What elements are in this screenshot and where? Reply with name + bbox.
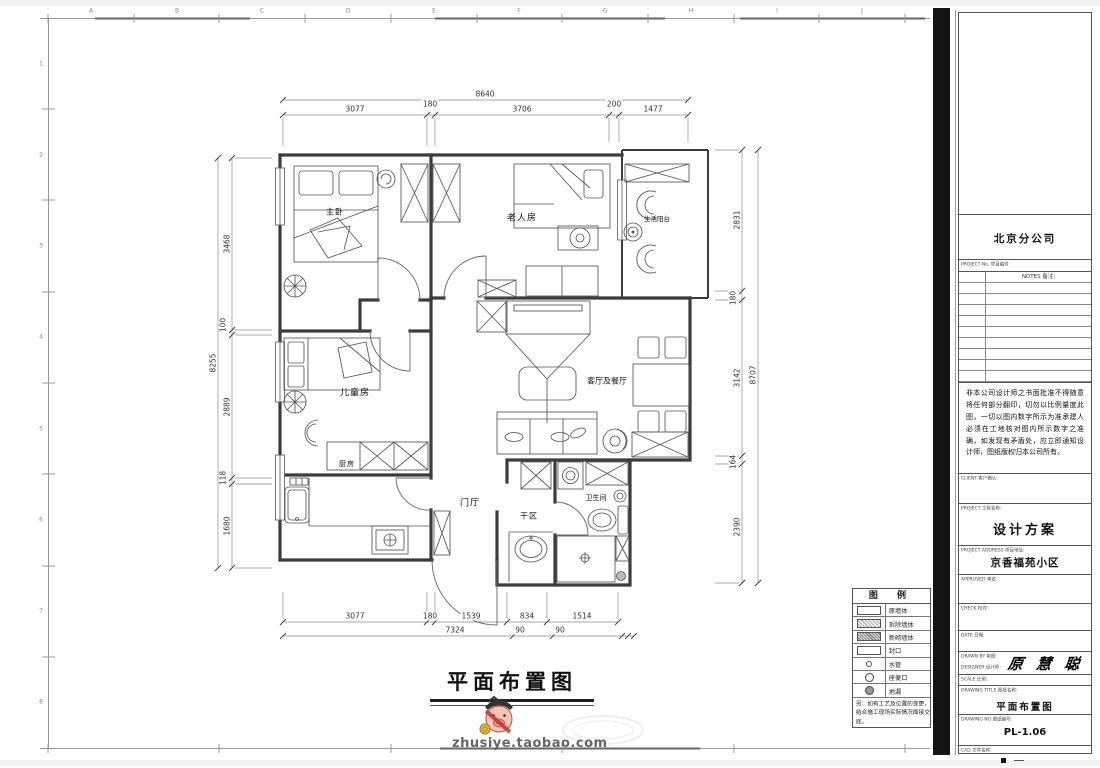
grid-number: 1 (39, 61, 43, 68)
address-value: 京香福苑小区 (959, 555, 1091, 570)
dim-top: 200 (606, 100, 622, 109)
dim-bottom-extra: 90 (554, 626, 566, 635)
grid-letter: D (346, 8, 351, 15)
approved-label: APPROVED 审定: (961, 576, 997, 582)
room-label-master-bedroom: 主卧 (326, 207, 344, 218)
project-name: 设计方案 (959, 519, 1091, 538)
cad-file-label: CAD 文件名称: (961, 747, 992, 753)
dim-left-total: 8255 (209, 352, 218, 373)
drawing-title-row: DRAWING TITLE 图纸名称: 平面布置图 (959, 685, 1091, 714)
legend-label: 新砌墙体 (886, 632, 928, 642)
company-name: 北京分公司 (959, 231, 1091, 246)
dim-right: 2390 (733, 516, 742, 537)
legend-label: 封口 (886, 646, 928, 656)
dim-top: 3077 (344, 105, 365, 114)
balcony-walls (622, 150, 708, 298)
dim-bottom: 1514 (571, 612, 592, 621)
legend-label: 地漏 (886, 686, 928, 696)
notes-table (959, 282, 1091, 382)
drawing-no-label: DRAWING NO 图纸编号: (961, 716, 1012, 722)
room-label-living-dining: 客厅及餐厅 (587, 376, 627, 387)
grid-letter: A (89, 8, 93, 15)
legend-symbol-floor-drain (853, 684, 886, 696)
legend-title: 图 例 (853, 589, 930, 604)
dim-bottom-total: 7324 (444, 626, 465, 635)
address-label: PROJECT ADDRESS 项目地址: (961, 547, 1025, 553)
grid-letter: B (175, 8, 179, 15)
legend-symbol-sealed-opening (853, 644, 886, 656)
room-label-elder-room: 老人房 (507, 211, 537, 224)
drawing-no-row: DRAWING NO 图纸编号: PL-1.06 (959, 714, 1091, 745)
date-row: DATE 日期: (959, 630, 1091, 651)
company-row: 北京分公司 (959, 214, 1091, 259)
pig-mascot-icon (476, 694, 522, 738)
legend-label: 拆除墙体 (886, 619, 928, 629)
titleblock-spacer (959, 13, 1091, 214)
scale-bar-dash (1014, 760, 1024, 761)
project-no-row: PROJECT No. 项目编号 (959, 259, 1091, 271)
grid-number: 2 (39, 152, 43, 159)
check-label: CHECK 校对: (961, 605, 988, 611)
grid-number: 8 (39, 699, 43, 706)
dim-bottom: 834 (519, 612, 535, 621)
dim-top: 180 (422, 100, 438, 109)
scale-label: SCALE 比例: (961, 676, 987, 682)
title-block: 北京分公司 PROJECT No. 项目编号 NOTES 备注: 非本公司设计师… (958, 12, 1092, 754)
grid-letter: E (432, 8, 436, 15)
window-symbols (276, 168, 627, 520)
disclaimer-row: 非本公司设计师之书面批准不得随意将任何部分翻印，切勿以比例量度此图，一切以图内数… (959, 382, 1091, 473)
project-label: PROJECT 工程名称: (961, 505, 1001, 511)
dim-right: 3142 (733, 367, 742, 388)
plan-title: 平面布置图 (430, 666, 594, 696)
dim-left: 118 (219, 470, 228, 486)
grid-number: 4 (39, 334, 43, 341)
legend-note: 另：如有工艺及位置的变更，结合施工现场实际情况面接交底。 (853, 698, 936, 728)
floor-plan: 8640 3077 180 3706 200 1477 8255 3468 10… (210, 80, 780, 650)
legend-symbol-demolished-wall (853, 617, 886, 629)
legend-symbol-original-wall (853, 604, 886, 616)
project-no-label: PROJECT No. 项目编号 (961, 261, 1009, 267)
room-label-balcony: 生活阳台 (644, 213, 670, 223)
dim-bottom-extra: 90 (514, 626, 526, 635)
legend-symbol-water-pipe (853, 658, 886, 670)
furniture (284, 164, 689, 582)
dim-right: 180 (729, 290, 738, 306)
legend: 图 例 原墙体 拆除墙体 新砌墙体 封口 水管 座便口 地漏 另：如有工艺及位置… (852, 588, 931, 728)
room-label-foyer: 门厅 (460, 496, 480, 509)
dim-left: 1680 (223, 515, 232, 536)
dim-bottom: 3077 (344, 612, 365, 621)
dimension-ticks (215, 97, 761, 639)
room-label-dry-area: 干区 (520, 511, 538, 522)
grid-number: 5 (39, 426, 43, 433)
legend-label: 水管 (886, 659, 928, 669)
dim-left: 2889 (223, 396, 232, 417)
room-label-bathroom: 卫生间 (586, 493, 607, 503)
legend-symbol-toilet-outlet (853, 671, 886, 683)
drawn-designer-row: DRAWN BY 制图: DESIGNER 设计师: 原 慧 聪 (959, 651, 1091, 674)
room-label-kitchen: 厨房 (339, 459, 355, 469)
date-label: DATE 日期: (961, 632, 985, 638)
check-row: CHECK 校对: (959, 603, 1091, 630)
room-label-kids-room: 儿童房 (340, 386, 370, 399)
dim-left: 100 (219, 317, 228, 333)
scale-row: SCALE 比例: (959, 674, 1091, 685)
grid-number: 7 (39, 608, 43, 615)
legend-label: 原墙体 (886, 605, 928, 615)
dim-right: 2831 (733, 209, 742, 230)
grid-number: 6 (39, 517, 43, 524)
drawing-title-label: DRAWING TITLE 图纸名称: (961, 687, 1017, 693)
dim-left: 3468 (223, 233, 232, 254)
drawing-title-value: 平面布置图 (959, 699, 1091, 713)
dim-top-total: 8640 (474, 90, 495, 99)
project-row: PROJECT 工程名称: 设计方案 (959, 503, 1091, 545)
client-label: CLIENT 客户确认: (961, 475, 998, 481)
disclaimer-text: 非本公司设计师之书面批准不得随意将任何部分翻印，切勿以比例量度此图，一切以图内数… (959, 383, 1091, 464)
grid-letter: C (260, 8, 264, 15)
grid-number: 3 (39, 243, 43, 250)
notes-header-row: NOTES 备注: (959, 271, 1091, 282)
client-row: CLIENT 客户确认: (959, 473, 1091, 503)
floor-plan-drawing (210, 80, 780, 650)
legend-symbol-new-wall (853, 631, 886, 643)
dim-right: 164 (729, 454, 738, 470)
designer-label: DESIGNER 设计师: (961, 664, 1001, 670)
dim-bottom: 1539 (460, 612, 481, 621)
cad-row: CAD 文件名称: (959, 745, 1091, 768)
designer-signature: 原 慧 聪 (1006, 653, 1084, 674)
drawn-by-label: DRAWN BY 制图: (961, 653, 997, 659)
drawing-no-value: PL-1.06 (959, 727, 1091, 738)
dim-top: 1477 (642, 105, 663, 114)
grid-letter: I (776, 8, 778, 15)
grid-letter: G (603, 8, 608, 15)
legend-label: 座便口 (886, 672, 928, 682)
dim-bottom: 180 (422, 612, 438, 621)
notes-label: NOTES 备注: (986, 272, 1091, 282)
sheet-fold-line (955, 10, 956, 755)
dim-right-total: 8707 (749, 364, 758, 385)
address-row: PROJECT ADDRESS 项目地址: 京香福苑小区 (959, 545, 1091, 574)
sheet-fold-bar (933, 8, 950, 755)
grid-letter: F (517, 8, 520, 15)
grid-letter: J (861, 8, 863, 15)
watermark: zhusiye.taobao.com (448, 694, 668, 758)
approved-row: APPROVED 审定: (959, 574, 1091, 603)
scale-bar-mark (1001, 758, 1006, 763)
watermark-text: zhusiye.taobao.com (452, 736, 608, 751)
grid-letter: H (689, 8, 694, 15)
dim-top: 3706 (511, 105, 532, 114)
